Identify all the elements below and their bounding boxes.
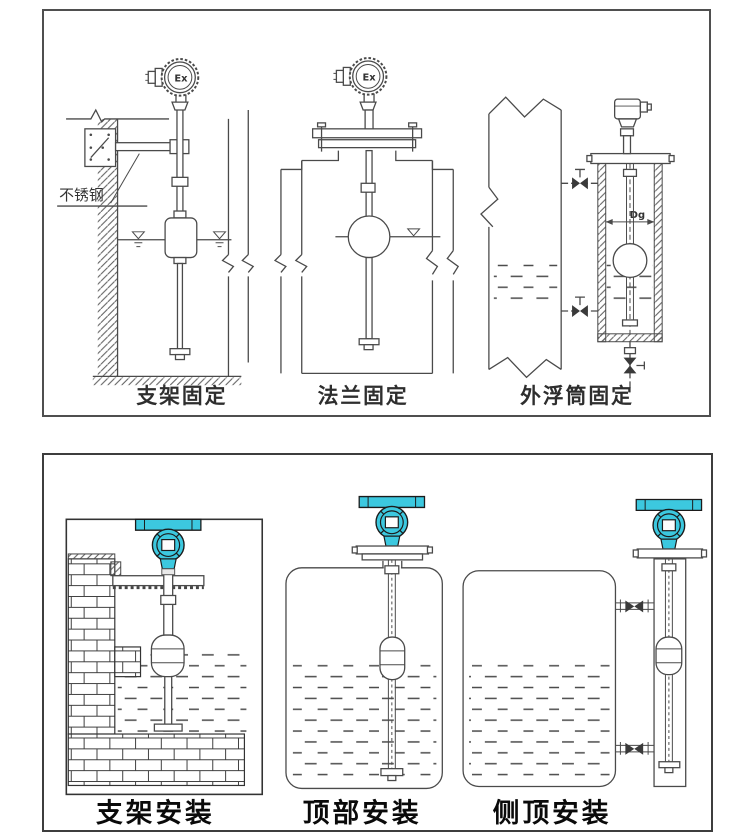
transmitter-head	[359, 497, 424, 552]
tank-liquid	[494, 258, 557, 308]
sensor-rod	[177, 102, 183, 213]
isolation-valve-top	[561, 169, 598, 189]
ex-label: Ex	[174, 73, 188, 84]
connection-valve-bottom	[615, 742, 654, 755]
material-label: 不锈钢	[59, 186, 104, 204]
rod-end-stop	[623, 320, 638, 326]
fixing-methods-panel: 不锈钢 Ex 支架固定	[42, 9, 711, 417]
caption-bracket-mount: 支架安装	[96, 798, 215, 829]
caption-external-cage-fixing: 外浮筒固定	[520, 384, 634, 408]
ex-transmitter-head: Ex	[145, 59, 198, 110]
caption-top-mount: 顶部安装	[303, 798, 422, 829]
diameter-label: Dg	[630, 210, 645, 221]
isolation-valve-bottom	[561, 297, 598, 317]
float	[656, 637, 682, 675]
caption-flange-fixing: 法兰固定	[318, 384, 409, 408]
brick-wall	[68, 559, 115, 734]
bracket-mount-figure: 支架安装	[66, 519, 262, 829]
cage-transmitter-head	[615, 99, 652, 153]
rod-end-stop	[659, 762, 680, 768]
brick-ledge	[115, 647, 141, 677]
caption-side-top-mount: 侧顶安装	[493, 798, 612, 829]
drain-valve	[624, 342, 645, 390]
rod-end-stop	[359, 339, 379, 345]
sphere-float	[348, 216, 390, 258]
transmitter-head	[636, 500, 701, 555]
ex-transmitter-head: Ex	[333, 58, 386, 129]
mounting-styles-panel: 支架安装	[42, 453, 713, 832]
side-top-mount-figure: 侧顶安装	[463, 500, 706, 830]
level-symbol	[408, 229, 420, 236]
float	[151, 635, 184, 677]
top-mount-figure: 顶部安装	[286, 497, 442, 830]
fixing-methods-drawing: 不锈钢 Ex 支架固定	[44, 11, 709, 415]
mounting-styles-drawing: 支架安装	[44, 455, 711, 830]
float	[380, 637, 405, 680]
rod-end-stop	[381, 769, 403, 776]
rod-end-stop	[154, 724, 182, 731]
caption-bracket-fixing: 支架固定	[135, 384, 227, 408]
liquid	[469, 657, 610, 782]
external-cage-fixing-figure: Dg	[481, 97, 674, 408]
bracket-arm	[113, 576, 204, 586]
liquid	[293, 657, 436, 782]
sphere-float	[613, 244, 647, 278]
bracket-fixing-figure: 不锈钢 Ex 支架固定	[57, 59, 253, 408]
float	[165, 218, 197, 258]
mounting-flange	[352, 546, 432, 560]
installation-diagram-canvas: 不锈钢 Ex 支架固定	[0, 0, 750, 840]
brick-floor	[68, 734, 244, 785]
ex-label: Ex	[363, 72, 377, 83]
rod-end-stop	[170, 349, 190, 355]
connection-valve-top	[615, 599, 654, 612]
wall-cap	[68, 554, 115, 559]
mounting-flange	[633, 549, 706, 558]
float-cage: Dg	[587, 154, 674, 342]
flange-fixing-figure: Ex 法兰固定	[275, 58, 458, 408]
